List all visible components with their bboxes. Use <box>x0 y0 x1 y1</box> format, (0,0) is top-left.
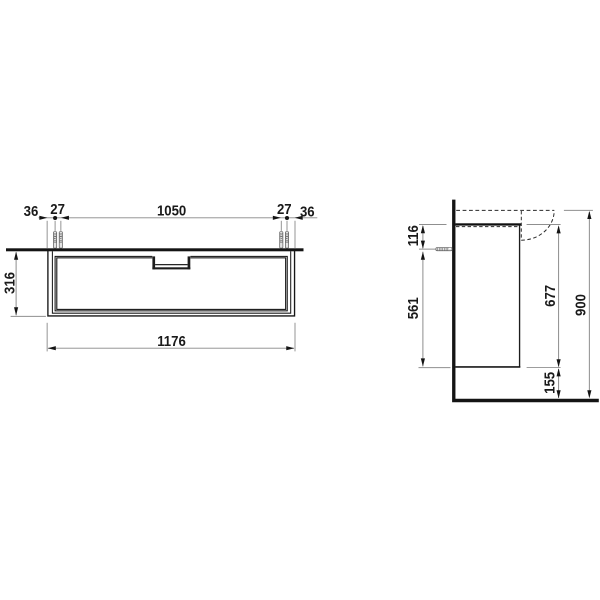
svg-text:1176: 1176 <box>157 332 186 349</box>
svg-text:1050: 1050 <box>157 201 186 218</box>
svg-text:561: 561 <box>404 297 421 319</box>
svg-text:27: 27 <box>50 200 65 217</box>
svg-text:36: 36 <box>24 202 39 219</box>
svg-text:316: 316 <box>1 272 18 294</box>
svg-text:116: 116 <box>404 225 421 246</box>
svg-text:155: 155 <box>540 372 557 394</box>
svg-text:27: 27 <box>277 200 292 217</box>
svg-text:677: 677 <box>541 285 558 307</box>
svg-text:900: 900 <box>572 294 589 316</box>
svg-text:36: 36 <box>300 203 315 220</box>
